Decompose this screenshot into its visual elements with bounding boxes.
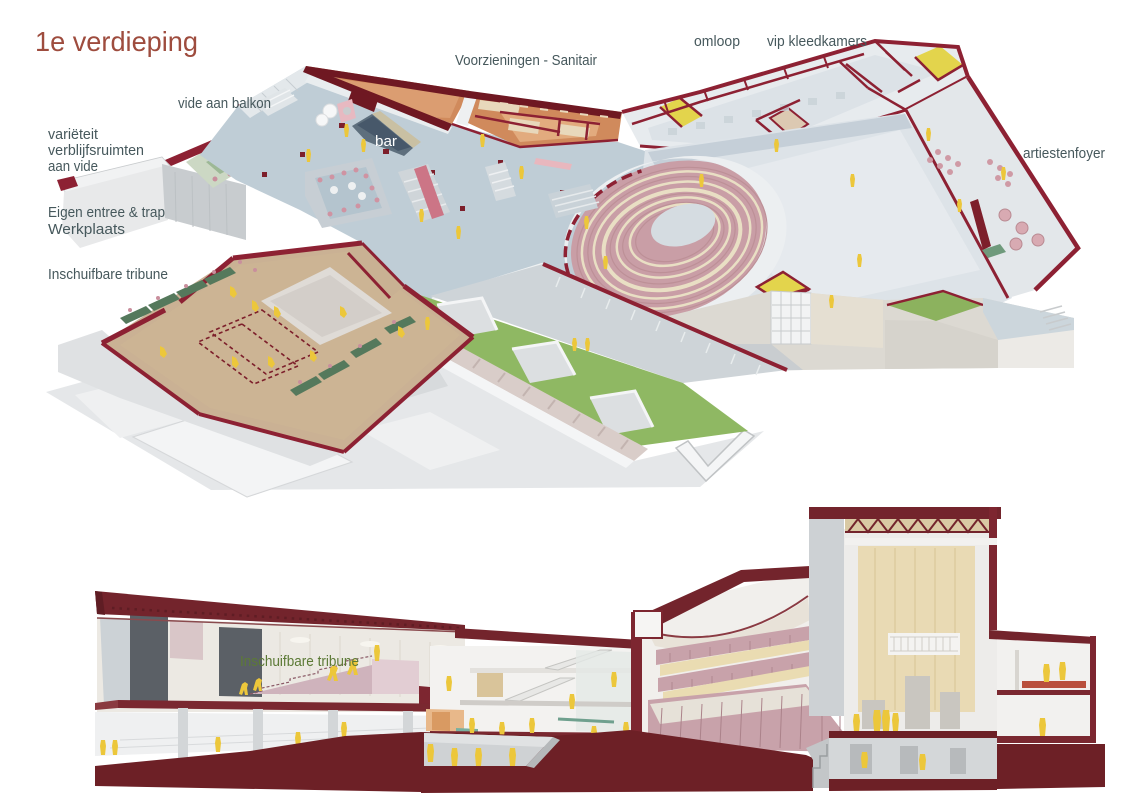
svg-text:omloop: omloop bbox=[694, 34, 740, 50]
svg-text:Voorzieningen - Sanitair: Voorzieningen - Sanitair bbox=[455, 53, 597, 69]
svg-text:Werkplaats: Werkplaats bbox=[48, 222, 125, 238]
svg-text:bar: bar bbox=[375, 134, 397, 150]
svg-text:Eigen entree & trap: Eigen entree & trap bbox=[48, 205, 165, 221]
svg-text:vip kleedkamers: vip kleedkamers bbox=[767, 34, 867, 50]
svg-text:artiestenfoyer: artiestenfoyer bbox=[1023, 146, 1105, 162]
svg-text:Inschuifbare tribune: Inschuifbare tribune bbox=[48, 267, 168, 283]
svg-text:verblijfsruimten: verblijfsruimten bbox=[48, 143, 144, 159]
svg-text:aan vide: aan vide bbox=[48, 159, 98, 175]
svg-text:vide aan balkon: vide aan balkon bbox=[178, 96, 271, 112]
svg-text:1e verdieping: 1e verdieping bbox=[35, 26, 198, 57]
svg-text:variëteit: variëteit bbox=[48, 127, 98, 143]
svg-text:Inschuifbare tribune: Inschuifbare tribune bbox=[240, 654, 359, 670]
